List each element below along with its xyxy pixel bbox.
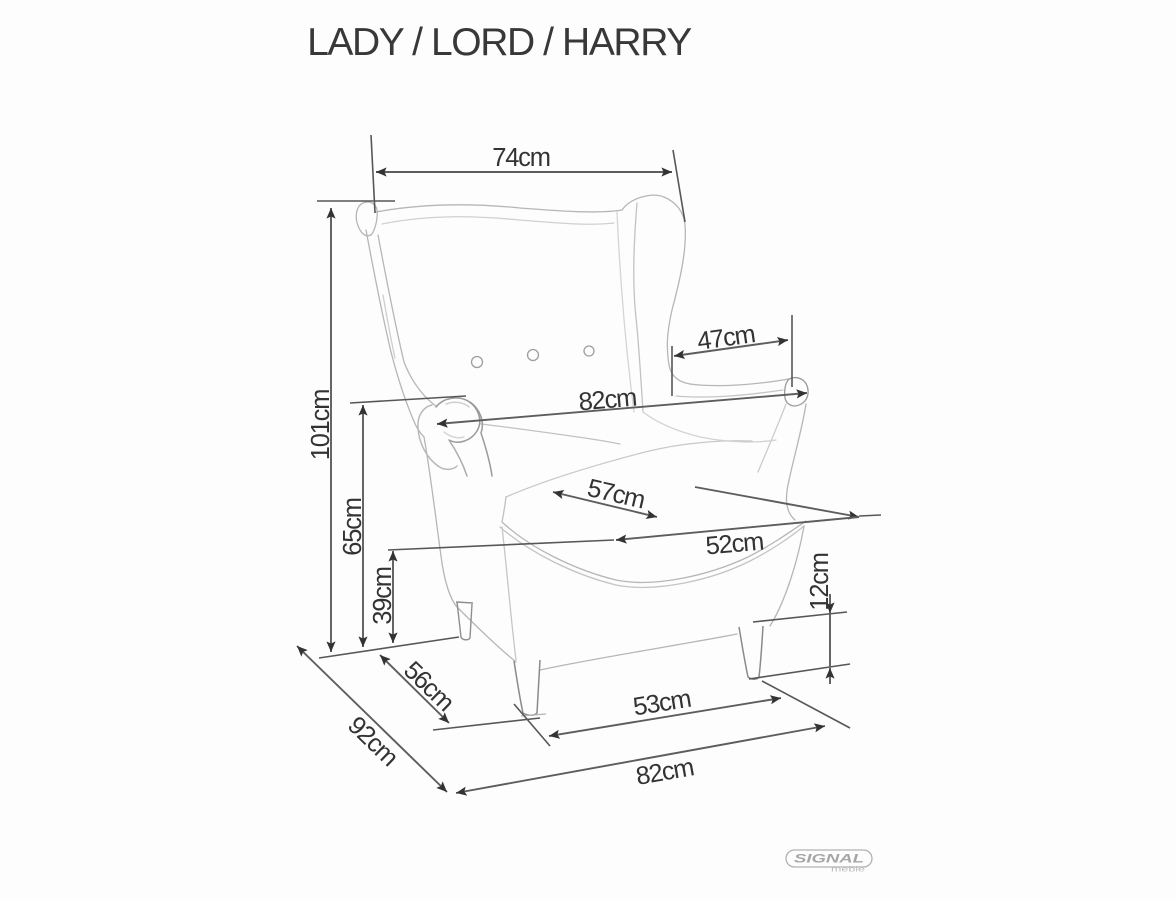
svg-text:LADY / LORD / HARRY: LADY / LORD / HARRY (307, 21, 692, 64)
svg-text:82cm: 82cm (577, 384, 637, 417)
svg-text:65cm: 65cm (339, 498, 367, 556)
svg-text:SIGNAL: SIGNAL (794, 854, 864, 866)
svg-text:12cm: 12cm (806, 553, 834, 611)
svg-text:52cm: 52cm (704, 528, 764, 561)
svg-text:101cm: 101cm (307, 390, 335, 461)
svg-text:39cm: 39cm (369, 567, 397, 625)
svg-text:74cm: 74cm (492, 144, 550, 172)
svg-text:meble: meble (831, 867, 865, 874)
